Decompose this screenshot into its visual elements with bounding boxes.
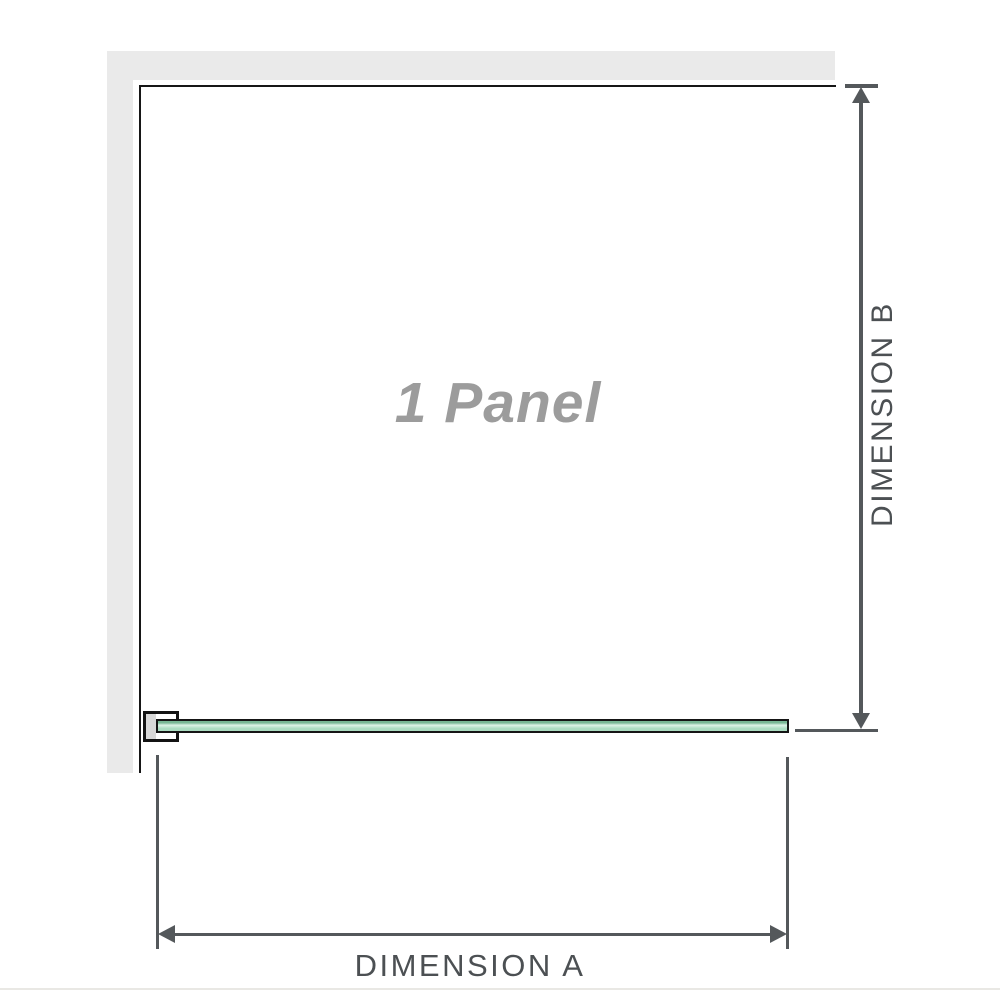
wall-left [107, 51, 133, 773]
dimension-b-bottom-tick [795, 729, 878, 732]
wall-bracket-insert [146, 714, 156, 739]
dimension-a-arrowhead-right-icon [770, 925, 787, 943]
dimension-b-arrowhead-down-icon [852, 713, 870, 729]
shower-panel-dimension-diagram: 1 Panel DIMENSION B DIMENSION A [0, 0, 1000, 1000]
dimension-b-label: DIMENSION B [858, 289, 908, 539]
dimension-a-left-tick [156, 755, 159, 949]
panel-area-outline-left [139, 85, 141, 773]
dimension-a-label: DIMENSION A [240, 948, 700, 984]
glass-panel [156, 719, 789, 733]
bottom-divider [0, 988, 1000, 990]
wall-top [107, 51, 835, 80]
dimension-a-right-tick [786, 757, 789, 949]
dimension-b-arrowhead-up-icon [852, 87, 870, 103]
panel-area-outline-top [139, 85, 836, 87]
panel-count-label: 1 Panel [298, 368, 698, 438]
dimension-a-arrowhead-left-icon [158, 925, 175, 943]
dimension-a-line [170, 933, 776, 936]
